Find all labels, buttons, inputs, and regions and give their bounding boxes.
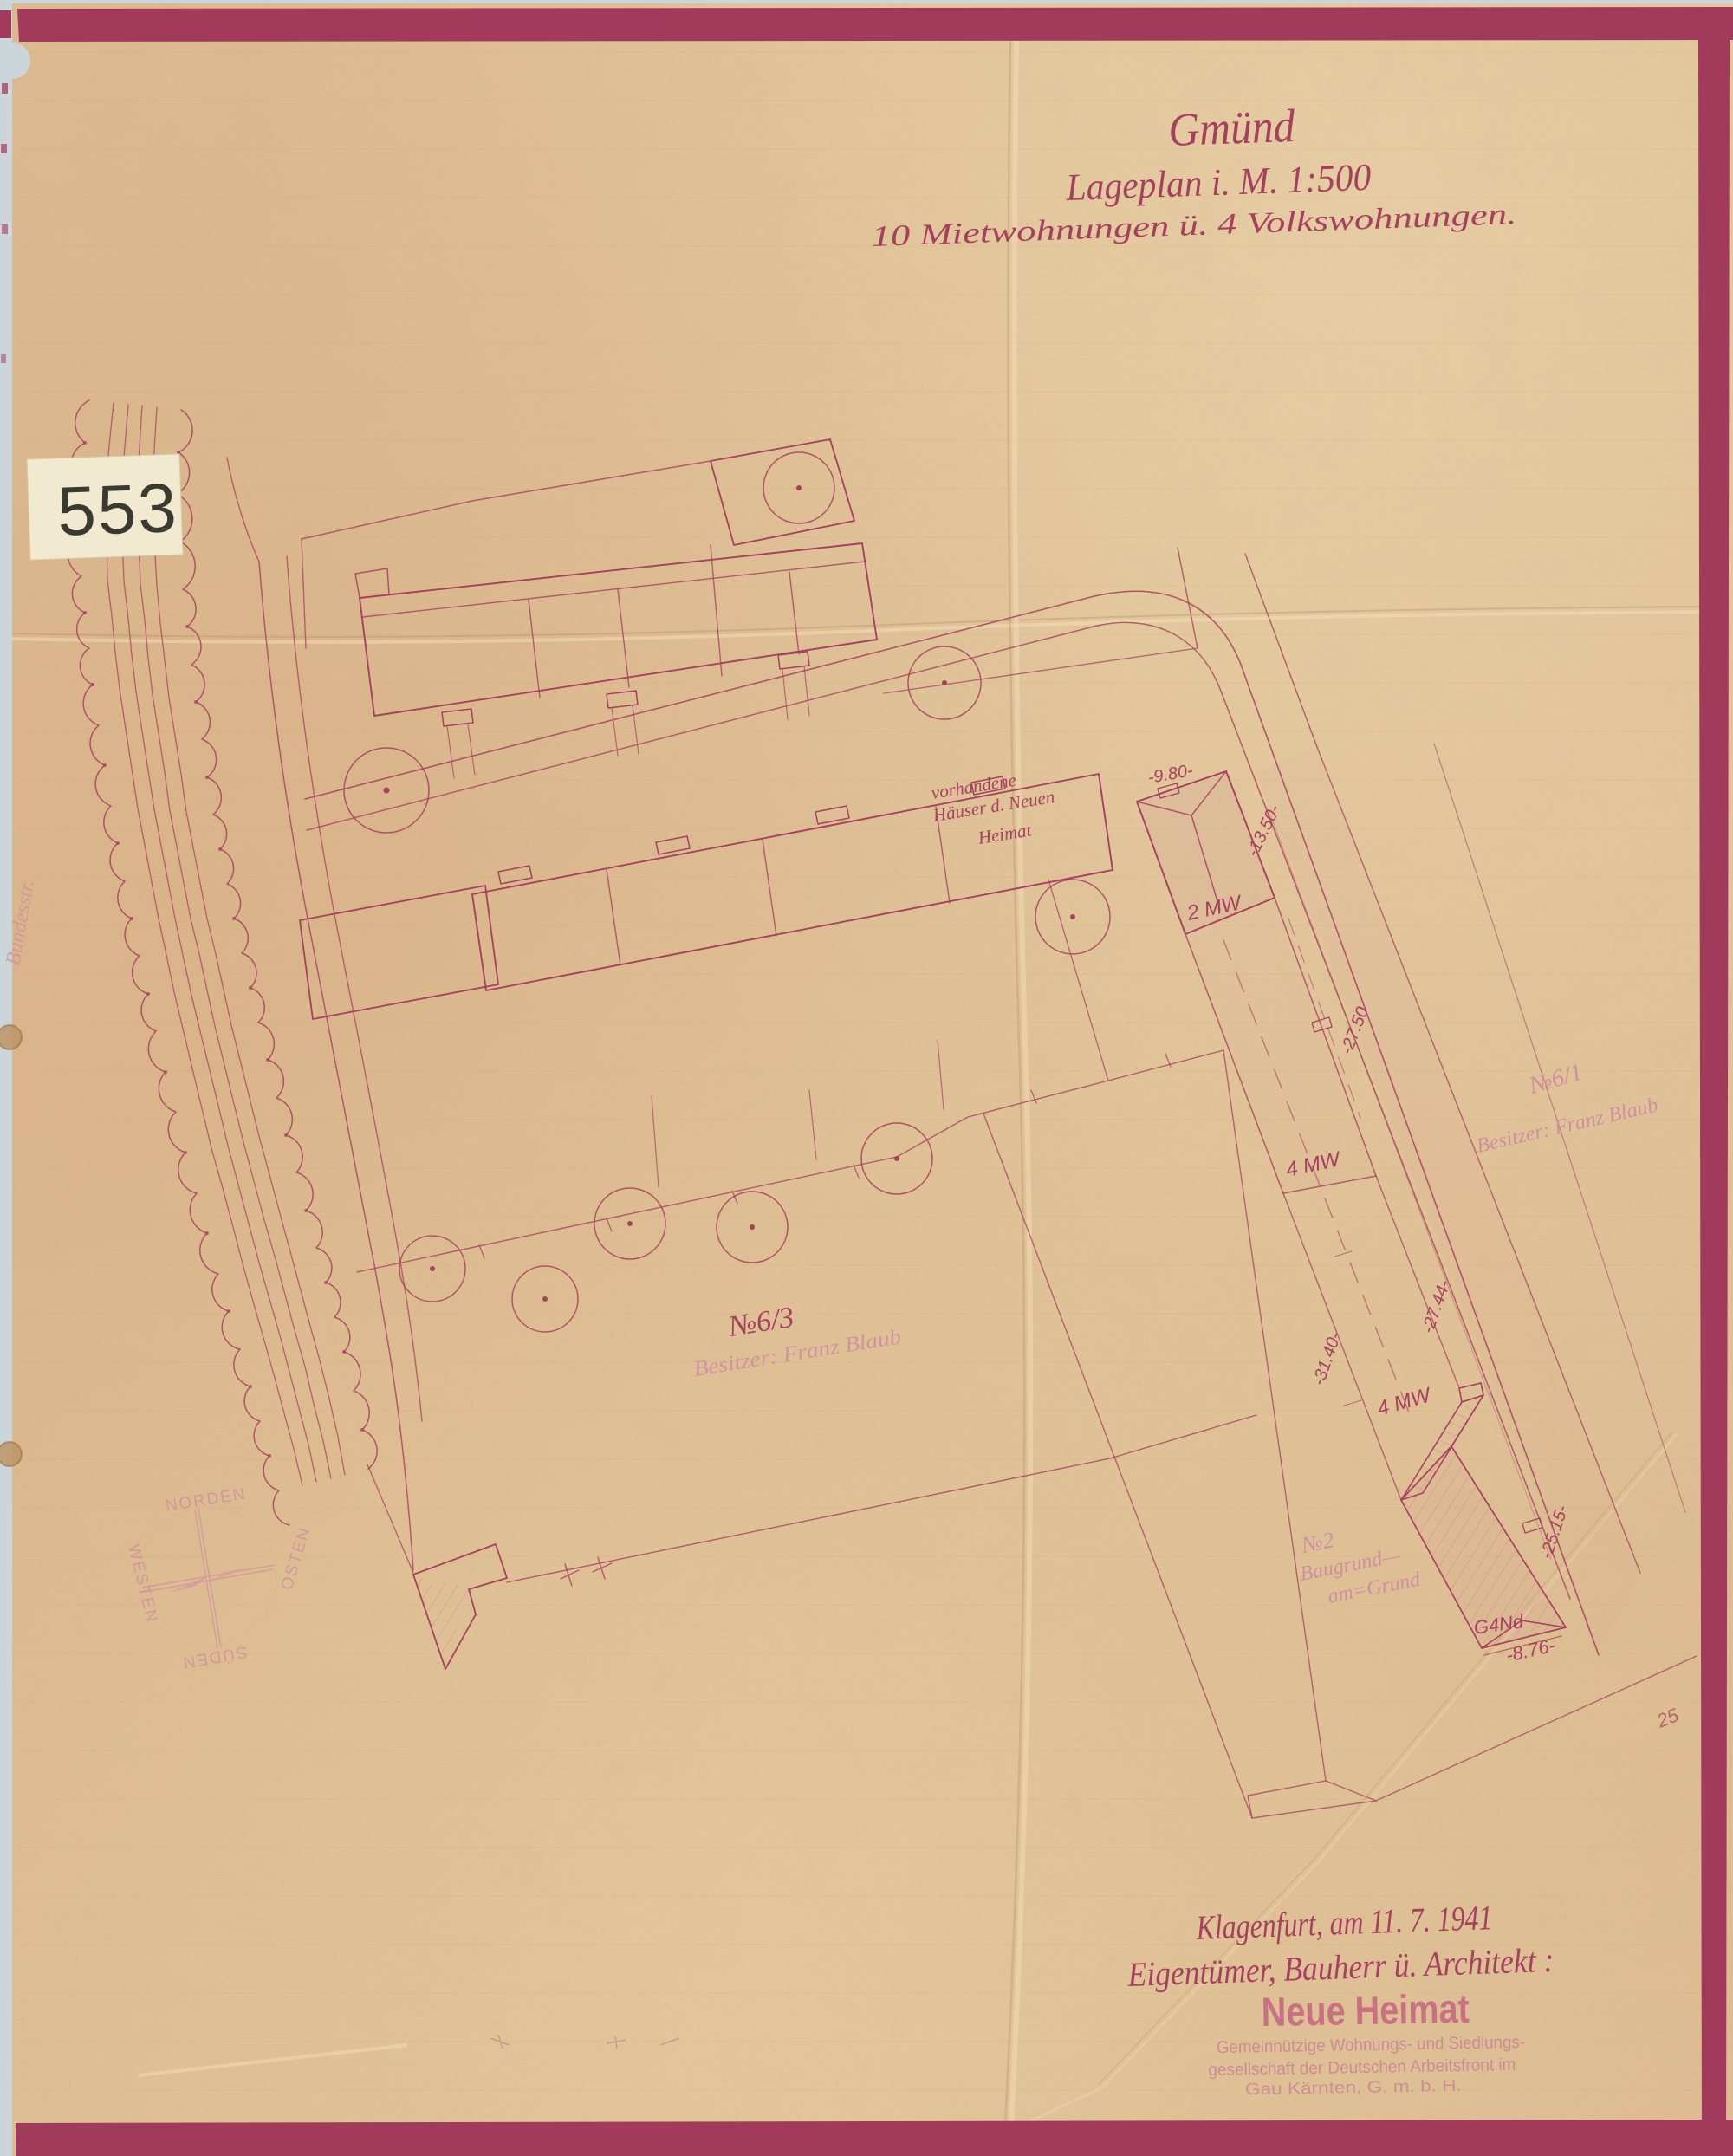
svg-text:553: 553	[56, 469, 180, 550]
svg-text:Gmünd: Gmünd	[1167, 100, 1296, 156]
svg-text:Neue Heimat: Neue Heimat	[1261, 1985, 1470, 2035]
svg-text:Gau Kärnten, G. m. b. H.: Gau Kärnten, G. m. b. H.	[1245, 2077, 1462, 2099]
